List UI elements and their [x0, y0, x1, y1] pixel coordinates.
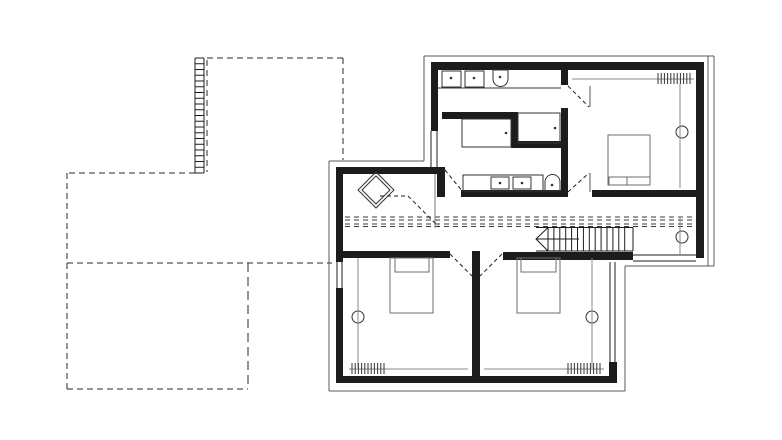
floorplan-svg: [0, 0, 782, 440]
windows: [337, 131, 696, 362]
corridor-guide-lines: [345, 217, 695, 227]
skylight-diamond: [358, 172, 394, 208]
exterior-walls: [336, 62, 704, 383]
lower-floor-outline: [67, 58, 343, 389]
bathroom-top-fixtures: [438, 70, 561, 147]
bathroom-bottom-fixtures: [463, 175, 560, 191]
trellis-band: [195, 58, 204, 173]
roof-overhang-outline: [329, 56, 714, 391]
staircase: [536, 228, 633, 252]
floorplan-page: [0, 0, 782, 440]
